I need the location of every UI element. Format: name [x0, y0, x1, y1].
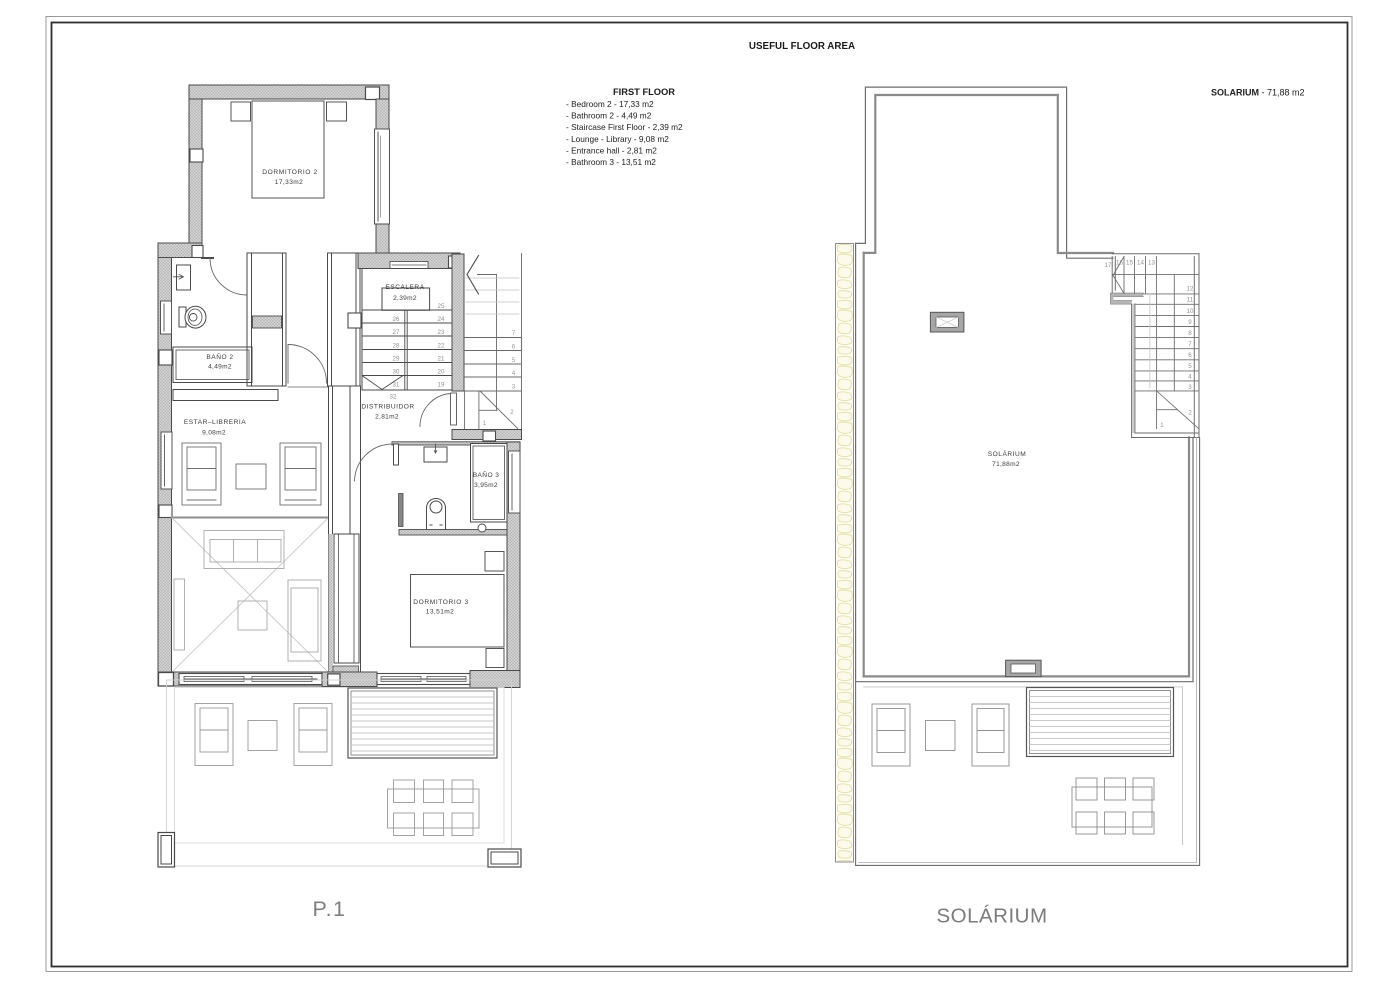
svg-text:6: 6 [1188, 352, 1192, 359]
svg-text:1: 1 [1160, 422, 1164, 429]
svg-text:5: 5 [1188, 363, 1192, 370]
svg-text:- Entrance hall - 2,81 m2: - Entrance hall - 2,81 m2 [566, 145, 657, 155]
svg-text:31: 31 [393, 382, 400, 389]
svg-text:20: 20 [438, 369, 445, 376]
svg-text:19: 19 [438, 382, 445, 389]
svg-text:32: 32 [390, 394, 397, 401]
svg-text:2,39m2: 2,39m2 [393, 295, 417, 302]
svg-text:- Bathroom 3 - 13,51 m2: - Bathroom 3 - 13,51 m2 [566, 157, 656, 167]
svg-text:13: 13 [1148, 260, 1155, 267]
svg-text:21: 21 [438, 356, 445, 363]
svg-text:DISTRIBUIDOR: DISTRIBUIDOR [361, 404, 414, 411]
svg-text:30: 30 [393, 369, 400, 376]
svg-text:2: 2 [510, 409, 514, 416]
svg-text:27: 27 [393, 329, 400, 336]
svg-text:FIRST FLOOR: FIRST FLOOR [613, 87, 675, 97]
svg-text:7: 7 [1188, 341, 1192, 348]
svg-text:DORMITORIO 2: DORMITORIO 2 [262, 169, 317, 176]
svg-text:28: 28 [393, 343, 400, 350]
svg-text:- Lounge - Library - 9,08 m2: - Lounge - Library - 9,08 m2 [566, 134, 669, 144]
svg-text:2,81m2: 2,81m2 [375, 414, 399, 421]
svg-text:BAÑO 3: BAÑO 3 [473, 470, 500, 479]
svg-text:4,49m2: 4,49m2 [208, 364, 232, 371]
svg-text:7: 7 [512, 330, 516, 337]
svg-text:13,51m2: 13,51m2 [426, 609, 454, 616]
svg-text:24: 24 [438, 316, 445, 323]
svg-text:ESTAR–LIBRERIA: ESTAR–LIBRERIA [184, 419, 246, 426]
svg-text:- Bedroom 2 - 17,33 m2: - Bedroom 2 - 17,33 m2 [566, 99, 654, 109]
svg-text:BAÑO 2: BAÑO 2 [206, 352, 233, 361]
svg-text:8: 8 [1188, 330, 1192, 337]
svg-text:USEFUL FLOOR AREA: USEFUL FLOOR AREA [749, 41, 855, 52]
svg-text:- Bathroom 2 - 4,49 m2: - Bathroom 2 - 4,49 m2 [566, 111, 652, 121]
svg-text:4: 4 [1188, 374, 1192, 381]
svg-text:22: 22 [438, 343, 445, 350]
svg-text:17: 17 [1105, 262, 1112, 269]
svg-text:9,08m2: 9,08m2 [202, 430, 226, 437]
svg-text:- Staircase First Floor - 2,39: - Staircase First Floor - 2,39 m2 [566, 122, 683, 132]
svg-text:26: 26 [393, 316, 400, 323]
svg-text:3,95m2: 3,95m2 [474, 482, 498, 489]
svg-text:2: 2 [1188, 410, 1192, 417]
svg-text:3: 3 [512, 384, 516, 391]
svg-text:1: 1 [483, 420, 487, 427]
svg-text:29: 29 [393, 356, 400, 363]
svg-text:5: 5 [512, 357, 516, 364]
svg-text:ESCALERA: ESCALERA [385, 284, 424, 291]
svg-text:SOLÁRIUM: SOLÁRIUM [988, 449, 1026, 458]
svg-text:15: 15 [1126, 260, 1133, 267]
svg-text:12: 12 [1187, 286, 1194, 293]
svg-text:16: 16 [1116, 260, 1123, 267]
svg-text:14: 14 [1137, 260, 1144, 267]
svg-text:SOLARIUM - 71,88 m2: SOLARIUM - 71,88 m2 [1211, 88, 1305, 98]
svg-text:10: 10 [1187, 308, 1194, 315]
svg-text:9: 9 [1188, 319, 1192, 326]
svg-text:4: 4 [512, 370, 516, 377]
svg-text:11: 11 [1187, 297, 1194, 304]
svg-text:25: 25 [438, 303, 445, 310]
svg-text:23: 23 [438, 329, 445, 336]
svg-text:71,88m2: 71,88m2 [992, 461, 1020, 468]
svg-text:P.1: P.1 [313, 897, 347, 921]
svg-text:6: 6 [512, 344, 516, 351]
svg-text:17,33m2: 17,33m2 [275, 179, 303, 186]
svg-text:SOLÁRIUM: SOLÁRIUM [936, 905, 1047, 928]
svg-text:3: 3 [1188, 384, 1192, 391]
svg-text:DORMITORIO 3: DORMITORIO 3 [413, 599, 468, 606]
